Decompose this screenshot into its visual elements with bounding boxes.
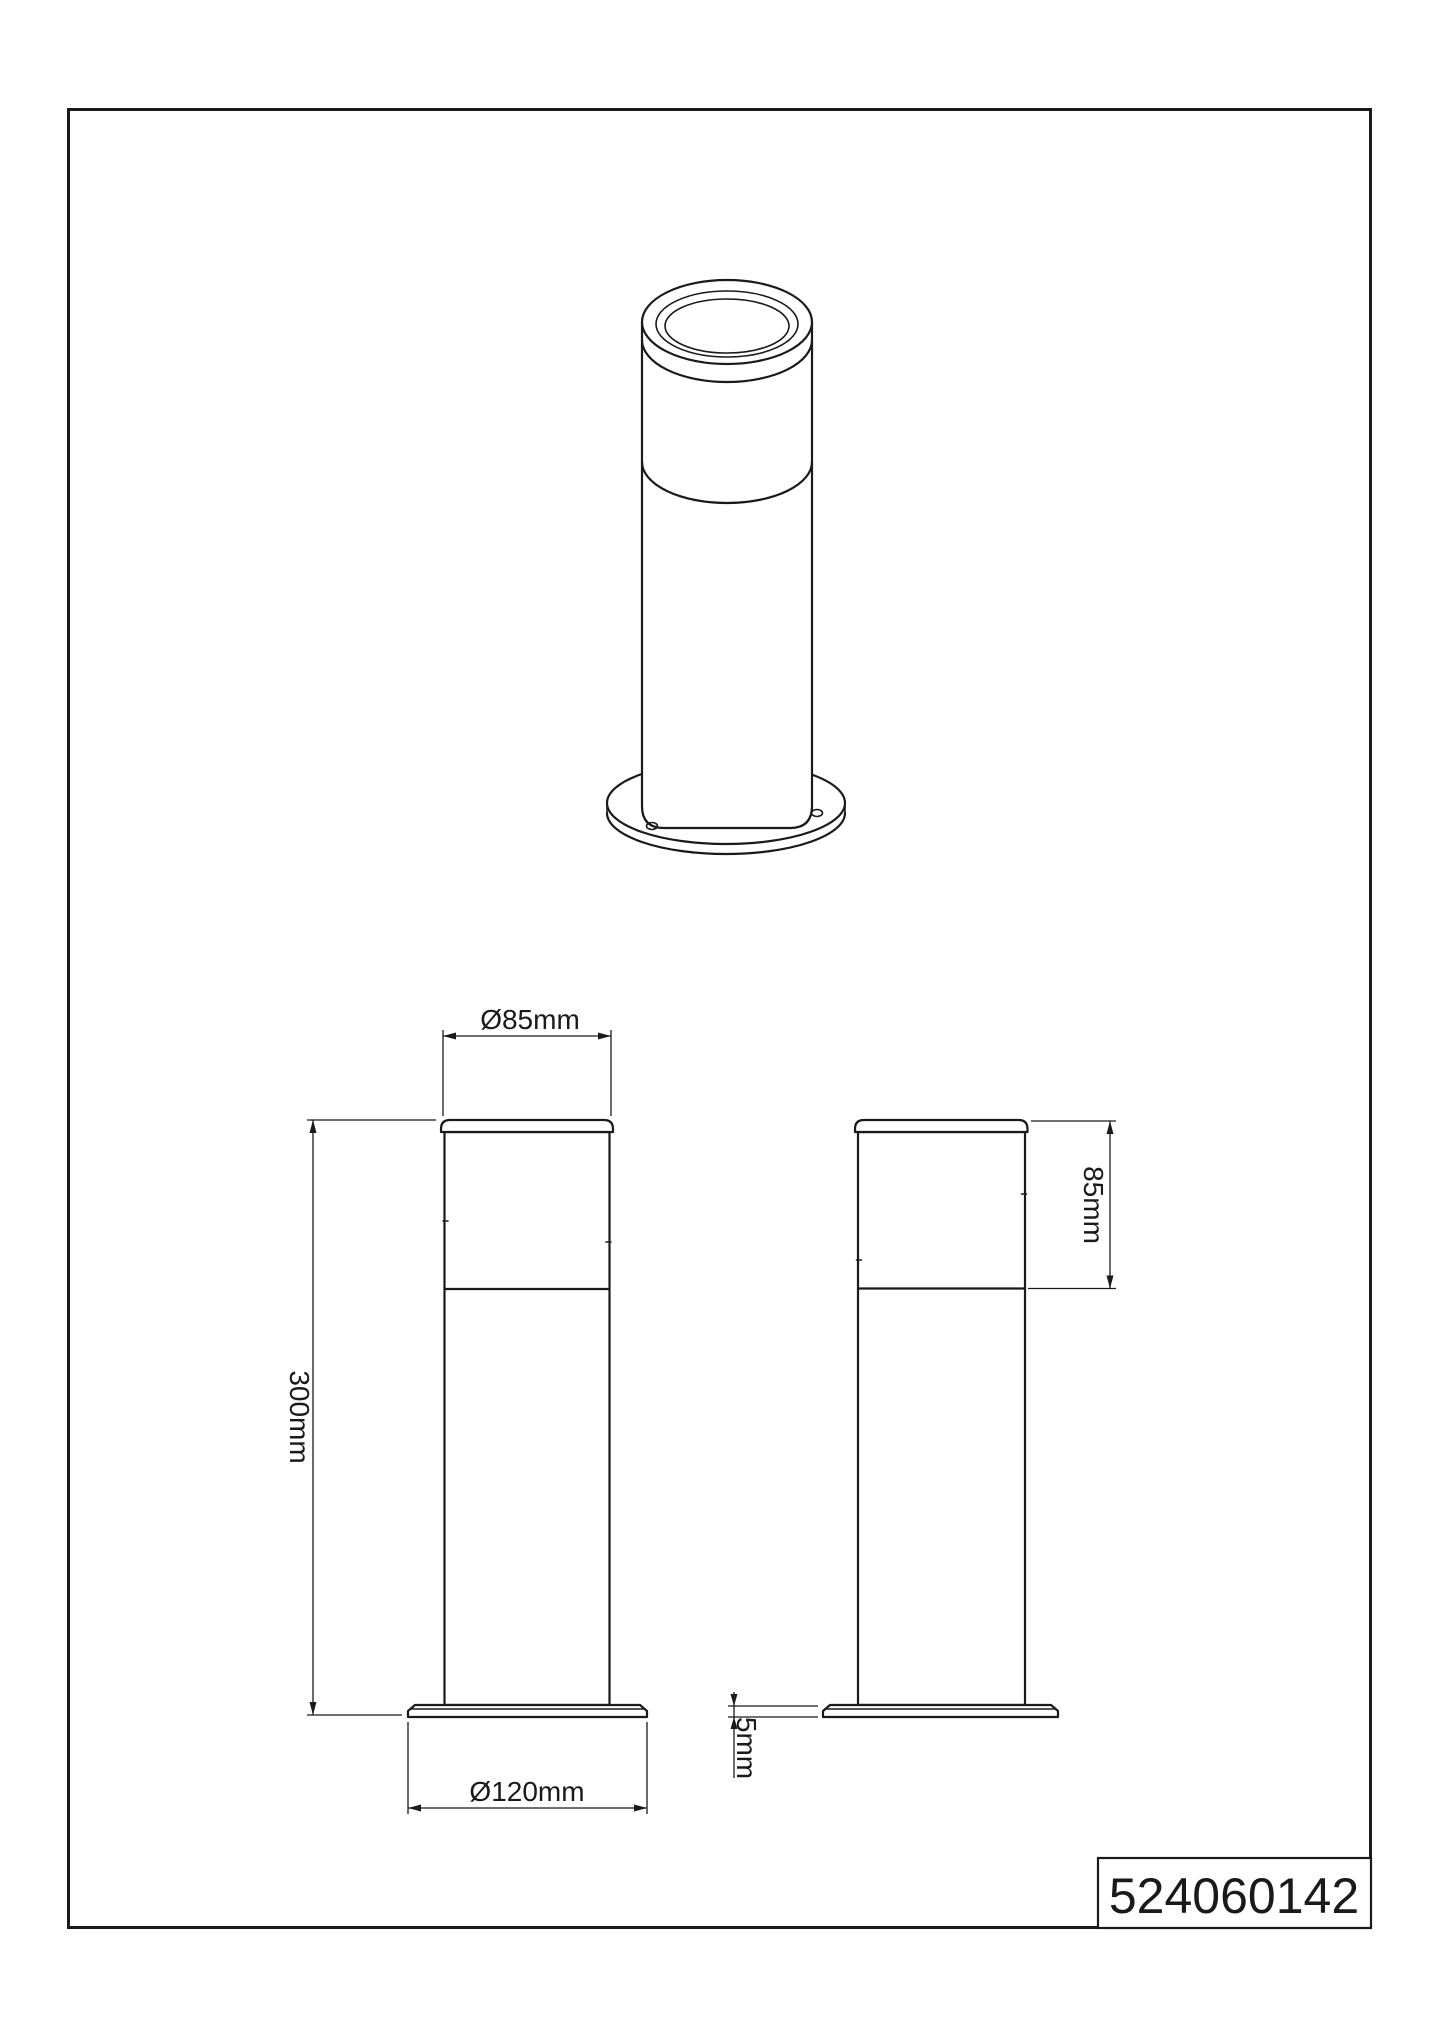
post-body	[642, 322, 812, 828]
side-body-outline	[858, 1132, 1025, 1705]
drawing-page: Ø85mm 300mm Ø120mm	[0, 0, 1440, 2036]
top-diameter-extension-lines	[443, 1030, 611, 1116]
perspective-view	[607, 280, 845, 854]
arrowhead-icon	[443, 1033, 456, 1040]
arrowhead-icon	[408, 1805, 421, 1812]
top-diameter-label: Ø85mm	[480, 1004, 580, 1035]
height-label: 300mm	[284, 1370, 315, 1463]
arrowhead-icon	[1107, 1121, 1114, 1134]
arrowhead-icon	[310, 1702, 317, 1715]
arrowhead-icon	[634, 1805, 647, 1812]
arrowhead-icon	[731, 1694, 738, 1706]
base-diameter-label: Ø120mm	[469, 1776, 584, 1807]
front-base-flange	[408, 1705, 647, 1717]
base-thickness-extension-lines	[728, 1706, 818, 1717]
base-thickness-label: 5mm	[731, 1717, 762, 1779]
height-extension-lines	[307, 1120, 436, 1715]
diffuser-height-label: 85mm	[1078, 1166, 1109, 1244]
technical-drawing: Ø85mm 300mm Ø120mm	[0, 0, 1440, 2036]
title-block: 524060142	[1098, 1858, 1371, 1928]
arrowhead-icon	[310, 1120, 317, 1133]
side-view	[823, 1120, 1058, 1717]
front-view	[408, 1120, 647, 1717]
side-base-flange	[823, 1705, 1058, 1717]
top-rim-outer-ellipse	[642, 280, 812, 364]
front-top-cap	[441, 1120, 613, 1132]
front-body-outline	[445, 1132, 610, 1705]
arrowhead-icon	[1107, 1276, 1114, 1289]
part-number: 524060142	[1109, 1868, 1359, 1924]
side-top-cap	[855, 1120, 1028, 1132]
arrowhead-icon	[598, 1033, 611, 1040]
